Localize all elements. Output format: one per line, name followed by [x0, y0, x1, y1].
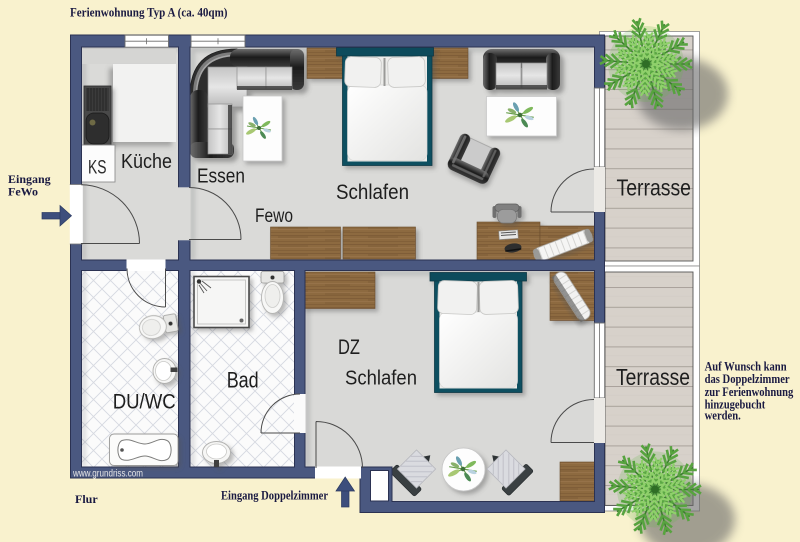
svg-text:Ferienwohnung Typ A (ca. 40qm): Ferienwohnung Typ A (ca. 40qm) [70, 6, 228, 20]
svg-text:Fewo: Fewo [255, 205, 293, 227]
svg-text:Flur: Flur [75, 492, 98, 506]
svg-text:Küche: Küche [121, 150, 172, 173]
svg-text:Schlafen: Schlafen [336, 180, 409, 204]
svg-text:Terrasse: Terrasse [617, 174, 692, 200]
svg-text:Terrasse: Terrasse [616, 364, 690, 390]
svg-text:Schlafen: Schlafen [345, 368, 417, 390]
svg-text:werden.: werden. [705, 408, 741, 422]
svg-text:FeWo: FeWo [8, 185, 38, 199]
svg-text:KS: KS [88, 158, 107, 179]
svg-text:Bad: Bad [227, 368, 259, 393]
svg-text:DZ: DZ [338, 336, 360, 359]
svg-text:www.grundriss.com: www.grundriss.com [72, 469, 143, 480]
svg-text:Essen: Essen [197, 166, 245, 188]
svg-text:DU/WC: DU/WC [113, 390, 176, 413]
svg-text:Eingang Doppelzimmer: Eingang Doppelzimmer [221, 489, 328, 503]
